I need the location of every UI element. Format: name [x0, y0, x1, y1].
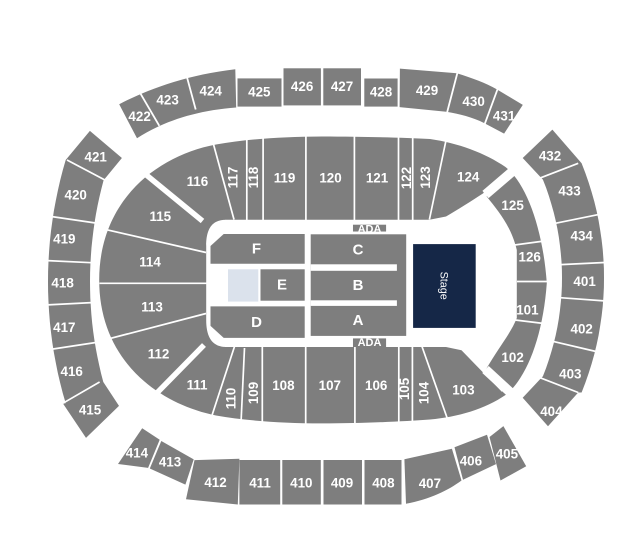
- svg-text:405: 405: [496, 447, 519, 462]
- svg-text:C: C: [353, 242, 364, 259]
- svg-text:410: 410: [290, 476, 312, 491]
- svg-text:411: 411: [249, 476, 271, 491]
- svg-text:416: 416: [61, 364, 83, 379]
- svg-text:403: 403: [559, 367, 581, 382]
- svg-text:419: 419: [53, 231, 75, 246]
- svg-text:119: 119: [274, 171, 296, 186]
- svg-text:125: 125: [501, 198, 524, 213]
- svg-text:109: 109: [246, 382, 261, 404]
- svg-text:412: 412: [204, 475, 226, 490]
- svg-text:102: 102: [501, 350, 523, 365]
- svg-text:120: 120: [319, 171, 341, 186]
- svg-text:121: 121: [366, 171, 389, 186]
- svg-text:113: 113: [141, 299, 163, 314]
- svg-text:103: 103: [452, 383, 474, 398]
- svg-text:406: 406: [460, 453, 482, 468]
- svg-text:108: 108: [272, 378, 295, 393]
- svg-text:111: 111: [187, 378, 208, 393]
- svg-text:428: 428: [370, 85, 393, 100]
- svg-text:106: 106: [365, 378, 387, 393]
- svg-text:422: 422: [128, 109, 150, 124]
- svg-text:118: 118: [246, 166, 261, 188]
- svg-text:101: 101: [516, 303, 539, 318]
- svg-text:105: 105: [397, 377, 412, 400]
- svg-text:104: 104: [417, 381, 432, 404]
- svg-text:A: A: [353, 312, 364, 329]
- svg-text:426: 426: [291, 79, 313, 94]
- svg-text:123: 123: [418, 166, 433, 188]
- svg-text:117: 117: [226, 167, 241, 189]
- svg-text:427: 427: [331, 79, 353, 94]
- svg-text:Stage: Stage: [438, 272, 450, 300]
- svg-text:420: 420: [65, 187, 87, 202]
- svg-text:425: 425: [248, 85, 271, 100]
- svg-text:429: 429: [416, 83, 438, 98]
- svg-text:414: 414: [126, 446, 149, 461]
- svg-text:430: 430: [462, 94, 484, 109]
- svg-text:115: 115: [149, 209, 171, 224]
- svg-text:116: 116: [187, 174, 209, 189]
- svg-text:107: 107: [319, 378, 341, 393]
- svg-text:421: 421: [85, 150, 108, 165]
- svg-text:415: 415: [79, 403, 102, 418]
- svg-text:407: 407: [419, 476, 441, 491]
- svg-text:112: 112: [148, 347, 170, 362]
- svg-text:126: 126: [519, 250, 541, 265]
- svg-text:431: 431: [493, 109, 516, 124]
- svg-text:124: 124: [457, 169, 480, 184]
- svg-text:110: 110: [223, 388, 238, 410]
- svg-text:423: 423: [156, 93, 178, 108]
- svg-text:424: 424: [200, 83, 223, 98]
- svg-text:418: 418: [51, 275, 74, 290]
- svg-text:D: D: [251, 314, 262, 331]
- svg-text:114: 114: [139, 255, 161, 270]
- svg-text:409: 409: [331, 476, 353, 491]
- svg-text:402: 402: [571, 322, 593, 337]
- svg-text:433: 433: [558, 184, 580, 199]
- svg-text:434: 434: [571, 228, 594, 243]
- svg-text:F: F: [252, 241, 261, 258]
- svg-text:B: B: [353, 277, 364, 294]
- svg-text:404: 404: [540, 404, 563, 419]
- svg-text:417: 417: [53, 320, 75, 335]
- svg-text:408: 408: [372, 476, 395, 491]
- svg-text:413: 413: [159, 455, 181, 470]
- svg-text:401: 401: [573, 274, 596, 289]
- svg-text:122: 122: [399, 167, 414, 189]
- svg-text:432: 432: [539, 149, 561, 164]
- svg-text:E: E: [277, 277, 287, 294]
